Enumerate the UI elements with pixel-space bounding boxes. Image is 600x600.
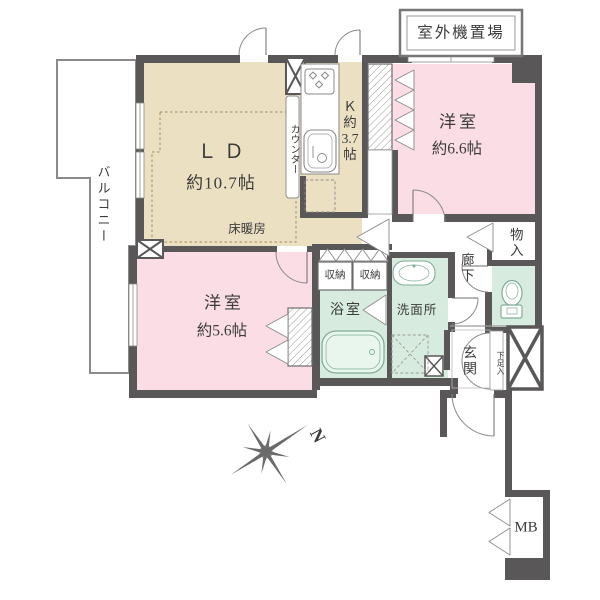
door-arc: [335, 30, 360, 55]
living-dining-size-label: 約10.7帖: [186, 175, 256, 192]
door-arc: [239, 28, 266, 55]
storage-left-label: 収納: [325, 271, 346, 282]
kitchen-label-line: Ｋ: [343, 99, 357, 115]
door-arc: [452, 298, 478, 324]
bifold-door: [354, 249, 371, 261]
bedroom1-size-label: 約6.6帖: [432, 141, 482, 157]
bifold-door: [319, 249, 336, 261]
floor-heating-label: 床暖房: [228, 223, 266, 236]
kitchen-label-line: 3.7: [342, 131, 359, 147]
bedroom2-size-label: 約5.6帖: [197, 323, 247, 339]
toilet-icon: [501, 281, 522, 319]
floor-plan: N 室外機置場 バルコニー ＬＤ 約10.7帖 床暖房 Ｋ 約 3.7 帖 カウ…: [0, 0, 600, 600]
bifold-door: [336, 249, 353, 261]
bedroom1-name-label: 洋室: [439, 114, 479, 131]
north-label: N: [306, 425, 330, 446]
washroom-label: 洗面所: [397, 304, 438, 317]
kitchen-label-line: 約: [343, 115, 357, 131]
door-panel: [467, 223, 493, 252]
shoe-cabinet-label: 下足入: [496, 351, 504, 375]
bifold-door: [489, 528, 510, 555]
closet-hatched: [288, 308, 312, 366]
kitchen-label-line: 帖: [343, 147, 357, 163]
storage-right-label: 収納: [360, 271, 381, 282]
pillar-cross: [508, 327, 542, 389]
kitchen-label: Ｋ 約 3.7 帖: [342, 99, 359, 163]
outdoor-unit-label: 室外機置場: [417, 25, 505, 41]
bifold-door: [489, 499, 510, 526]
bathroom-label: 浴室: [330, 304, 362, 318]
meter-box-label: MB: [514, 521, 537, 536]
closet-hatched: [368, 64, 392, 150]
balcony-label: バルコニー: [97, 165, 110, 245]
counter-label: カウンター: [288, 124, 298, 174]
kitchen-sink-icon: [304, 130, 336, 172]
corridor-label: 廊下: [459, 253, 473, 284]
floor-plan-drawing: N: [0, 0, 600, 600]
living-dining-name-label: ＬＤ: [197, 142, 251, 162]
closet-lower: [368, 150, 392, 214]
entrance-label: 玄関: [461, 345, 475, 377]
closet-label: 物入: [508, 228, 522, 259]
door-arc: [452, 394, 494, 436]
compass-rose: N: [230, 422, 330, 485]
bedroom2-name-label: 洋室: [204, 295, 244, 312]
pillar-cross: [137, 240, 163, 258]
